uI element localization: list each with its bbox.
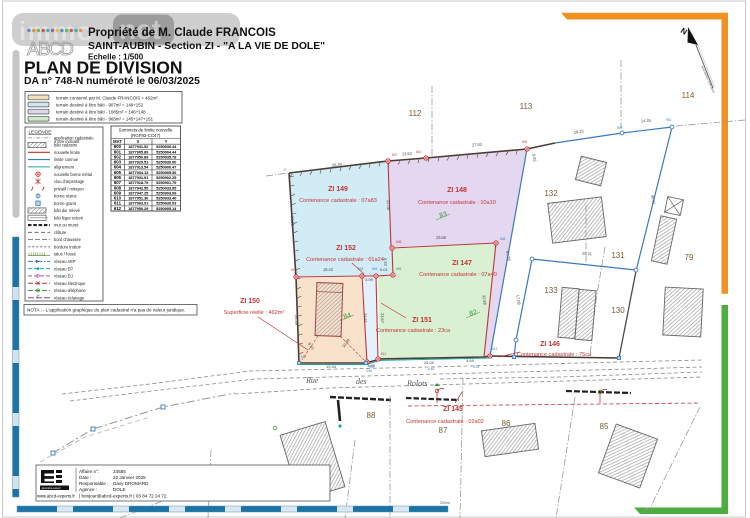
- svg-text:| bonjour@abcd-experts.fr | 03: | bonjour@abcd-experts.fr | 03 84 72 24 …: [79, 494, 167, 499]
- svg-text:bâti dur relevé: bâti dur relevé: [54, 208, 81, 213]
- svg-text:610: 610: [416, 150, 422, 154]
- svg-text:ZI 149: ZI 149: [328, 186, 348, 193]
- svg-text:(RGF93-CC47): (RGF93-CC47): [131, 133, 161, 138]
- svg-text:24585: 24585: [113, 469, 126, 474]
- svg-text:Affaire n°:: Affaire n°:: [79, 469, 99, 474]
- svg-text:Rue: Rue: [305, 376, 319, 385]
- svg-text:Contenance cadastrale : 23ca: Contenance cadastrale : 23ca: [376, 328, 451, 334]
- svg-text:28.11: 28.11: [582, 251, 593, 257]
- svg-text:22.08: 22.08: [386, 200, 392, 211]
- svg-text:4.48: 4.48: [428, 367, 434, 371]
- svg-text:24.61: 24.61: [363, 313, 368, 324]
- svg-text:PLAN DE DIVISION: PLAN DE DIVISION: [24, 58, 183, 78]
- svg-text:ZI 152: ZI 152: [336, 245, 356, 252]
- svg-text:3.99: 3.99: [367, 363, 376, 368]
- svg-text:terrain destiné à être bâti -: terrain destiné à être bâti - 1085m² = 1…: [56, 110, 146, 115]
- svg-text:ZI 151: ZI 151: [412, 317, 432, 324]
- svg-text:Rolots: Rolots: [406, 379, 427, 388]
- svg-text:réseau téléphone: réseau téléphone: [54, 288, 86, 293]
- svg-text:132: 132: [544, 189, 558, 198]
- svg-text:47: 47: [283, 168, 287, 172]
- svg-text:608: 608: [500, 237, 506, 241]
- svg-text:réseau AEP: réseau AEP: [54, 259, 76, 264]
- svg-text:Contenance cadastrale : 10a10: Contenance cadastrale : 10a10: [418, 200, 496, 206]
- svg-text:133: 133: [544, 286, 558, 295]
- svg-text:terrain destiné à être bâti -: terrain destiné à être bâti - 965m² = 14…: [56, 117, 154, 122]
- svg-text:borne granit: borne granit: [54, 201, 77, 206]
- svg-text:5250905.14: 5250905.14: [156, 206, 177, 211]
- svg-text:605: 605: [396, 267, 402, 271]
- svg-text:nouvelle borne métal: nouvelle borne métal: [54, 172, 92, 177]
- svg-text:604: 604: [372, 267, 378, 271]
- svg-text:250m: 250m: [440, 500, 451, 505]
- svg-text:Contenance cadastrale : 07a40: Contenance cadastrale : 07a40: [419, 272, 497, 278]
- svg-text:ZI 147: ZI 147: [452, 260, 472, 267]
- svg-text:terrain destiné à être bâti -: terrain destiné à être bâti - 907m² = 14…: [56, 102, 144, 107]
- svg-text:26.00: 26.00: [424, 360, 435, 365]
- svg-text:607: 607: [392, 153, 398, 157]
- svg-text:Contenance cadastrale : 75ca: Contenance cadastrale : 75ca: [517, 352, 592, 358]
- svg-text:14.35: 14.35: [641, 118, 652, 124]
- svg-text:géomètre-expert: géomètre-expert: [42, 486, 61, 490]
- svg-text:131: 131: [611, 251, 625, 260]
- svg-text:6.01: 6.01: [380, 267, 389, 272]
- svg-text:ABCD: ABCD: [27, 38, 74, 59]
- svg-text:27.83: 27.83: [472, 142, 483, 148]
- svg-text:NOTA : - L'application graphiq: NOTA : - L'application graphique du plan…: [27, 308, 185, 313]
- svg-text:réseau éclairage: réseau éclairage: [54, 295, 85, 300]
- svg-text:bâti léger relevé: bâti léger relevé: [54, 215, 84, 220]
- svg-text:606: 606: [396, 240, 402, 244]
- svg-text:1877950.29: 1877950.29: [128, 206, 149, 211]
- svg-text:611: 611: [381, 352, 386, 356]
- svg-text:borne résine: borne résine: [54, 194, 77, 199]
- svg-text:DOLE: DOLE: [113, 487, 126, 492]
- svg-text:nouvelle limite: nouvelle limite: [54, 150, 81, 155]
- svg-text:4.69: 4.69: [466, 358, 475, 363]
- svg-text:clôture: clôture: [54, 230, 67, 235]
- svg-text:612: 612: [114, 206, 122, 211]
- svg-text:limite connue: limite connue: [54, 157, 79, 162]
- svg-text:4.03: 4.03: [473, 365, 479, 369]
- svg-text:910: 910: [666, 118, 672, 122]
- svg-text:Contenance cadastrale : 02a02: Contenance cadastrale : 02a02: [406, 419, 484, 425]
- svg-text:79: 79: [685, 253, 694, 262]
- svg-text:Davy DROMARD: Davy DROMARD: [113, 481, 149, 486]
- svg-text:113: 113: [520, 102, 533, 111]
- svg-text:ZI 148: ZI 148: [447, 187, 467, 194]
- svg-text:29.88: 29.88: [436, 235, 447, 240]
- svg-text:bâti cadastre: bâti cadastre: [54, 143, 78, 148]
- svg-text:602: 602: [291, 268, 297, 272]
- svg-text:3.99: 3.99: [365, 277, 374, 282]
- svg-text:alignement: alignement: [54, 164, 75, 169]
- svg-text:bord chaussée: bord chaussée: [54, 237, 82, 242]
- svg-text:4.60: 4.60: [366, 369, 372, 373]
- svg-text:talus / fossé: talus / fossé: [54, 252, 77, 257]
- svg-text:88: 88: [367, 411, 376, 420]
- svg-text:ZI 150: ZI 150: [240, 298, 260, 305]
- svg-text:réseau EP: réseau EP: [54, 266, 73, 271]
- svg-text:clou d'arpentage: clou d'arpentage: [54, 179, 85, 184]
- svg-text:Contenance cadastrale : 07a83: Contenance cadastrale : 07a83: [299, 198, 377, 204]
- svg-text:23.67: 23.67: [380, 313, 385, 324]
- svg-text:26.56: 26.56: [290, 216, 296, 227]
- svg-text:SAINT-AUBIN - Section ZI - "A: SAINT-AUBIN - Section ZI - "A LA VIE DE …: [88, 41, 325, 52]
- svg-text:18.43: 18.43: [323, 267, 334, 272]
- svg-text:ZI 146: ZI 146: [540, 341, 560, 348]
- svg-text:612: 612: [492, 347, 498, 351]
- svg-text:87: 87: [439, 426, 448, 435]
- svg-text:mur ou muret: mur ou muret: [54, 223, 79, 228]
- svg-text:Agence :: Agence :: [79, 487, 97, 492]
- svg-text:13.62: 13.62: [402, 151, 413, 157]
- svg-text:22 Janvier 2025: 22 Janvier 2025: [113, 475, 146, 480]
- svg-text:ZI 145: ZI 145: [443, 406, 463, 413]
- svg-text:Date :: Date :: [79, 475, 91, 480]
- svg-text:bordure trottoir: bordure trottoir: [54, 244, 81, 249]
- svg-text:130: 130: [611, 306, 625, 315]
- svg-text:privatif / mitoyen: privatif / mitoyen: [54, 186, 85, 191]
- svg-text:réseau EU: réseau EU: [54, 274, 73, 279]
- svg-text:DA n° 748-N numéroté le 06/03/: DA n° 748-N numéroté le 06/03/2025: [24, 76, 200, 87]
- svg-text:112: 112: [409, 109, 422, 118]
- svg-text:Propriété de M. Claude FRANCOI: Propriété de M. Claude FRANCOIS: [88, 27, 276, 39]
- svg-text:des: des: [356, 377, 367, 386]
- svg-text:909: 909: [617, 126, 623, 130]
- svg-text:609: 609: [522, 140, 528, 144]
- svg-text:85: 85: [600, 422, 609, 431]
- svg-text:LEGENDE: LEGENDE: [29, 130, 52, 136]
- svg-text:terrain conservé par M. Claude: terrain conservé par M. Claude FRANCOIS …: [56, 95, 158, 100]
- svg-text:réseau électrique: réseau électrique: [54, 281, 86, 286]
- svg-text:114: 114: [682, 91, 695, 100]
- svg-text:Contenance cadastrale : 01a24: Contenance cadastrale : 01a24: [306, 257, 384, 263]
- svg-text:19.34: 19.34: [326, 364, 337, 369]
- svg-text:Sommets de limite nouvelle: Sommets de limite nouvelle: [119, 128, 173, 133]
- svg-text:www.abcd-experts.fr: www.abcd-experts.fr: [37, 494, 76, 499]
- svg-text:Superficie réelle : 462m²: Superficie réelle : 462m²: [224, 310, 285, 316]
- svg-text:Responsable :: Responsable :: [79, 481, 108, 486]
- svg-text:24.39: 24.39: [294, 315, 300, 326]
